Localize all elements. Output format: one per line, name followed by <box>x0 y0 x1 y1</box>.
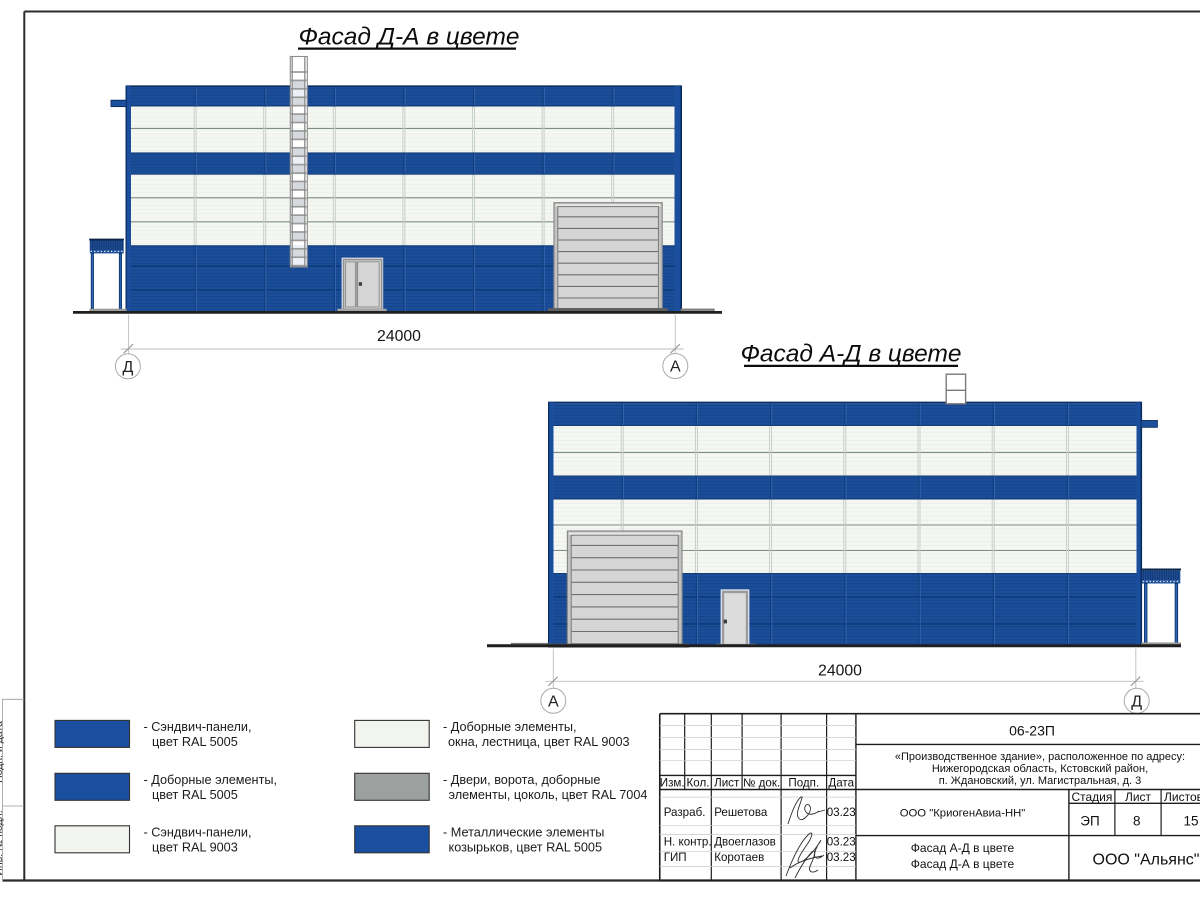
svg-text:цвет RAL 9003: цвет RAL 9003 <box>152 841 238 855</box>
svg-text:Д: Д <box>122 359 133 376</box>
svg-text:Фасад А-Д в цвете: Фасад А-Д в цвете <box>911 841 1015 855</box>
svg-text:03.23: 03.23 <box>827 806 856 819</box>
svg-text:А: А <box>670 359 681 376</box>
svg-text:Решетова: Решетова <box>714 806 768 819</box>
svg-text:06-23П: 06-23П <box>1009 723 1055 739</box>
svg-text:козырьков, цвет RAL 5005: козырьков, цвет RAL 5005 <box>449 841 603 855</box>
svg-text:Листов: Листов <box>1164 790 1200 804</box>
svg-text:- Доборные элементы,: - Доборные элементы, <box>443 720 577 734</box>
svg-text:03.23: 03.23 <box>827 835 856 848</box>
svg-text:окна, лестница, цвет RAL 9003: окна, лестница, цвет RAL 9003 <box>448 735 630 749</box>
svg-text:Нижегородская область, Кстовск: Нижегородская область, Кстовский район, <box>932 763 1148 775</box>
svg-text:Кол.: Кол. <box>687 777 710 790</box>
svg-text:Дата: Дата <box>828 777 854 790</box>
svg-text:элементы, цоколь, цвет RAL 700: элементы, цоколь, цвет RAL 7004 <box>449 788 648 802</box>
svg-text:Коротаев: Коротаев <box>714 851 764 864</box>
svg-text:- Сэндвич-панели,: - Сэндвич-панели, <box>144 720 252 734</box>
svg-text:Фасад Д-А в цвете: Фасад Д-А в цвете <box>298 24 519 51</box>
svg-text:Лист: Лист <box>714 777 740 790</box>
svg-text:- Доборные элементы,: - Доборные элементы, <box>144 773 278 787</box>
svg-text:Стадия: Стадия <box>1071 790 1112 804</box>
svg-text:Н. контр.: Н. контр. <box>664 835 712 848</box>
svg-text:Подп. и дата: Подп. и дата <box>0 721 5 783</box>
svg-text:Подп.: Подп. <box>788 777 819 790</box>
svg-text:ООО "Альянс": ООО "Альянс" <box>1093 851 1200 868</box>
svg-text:Лист: Лист <box>1125 790 1152 804</box>
svg-text:Двоеглазов: Двоеглазов <box>714 835 776 848</box>
svg-text:Фасад А-Д в цвете: Фасад А-Д в цвете <box>740 341 961 368</box>
svg-text:ГИП: ГИП <box>664 851 687 864</box>
svg-text:№ док.: № док. <box>743 777 780 790</box>
svg-text:Д: Д <box>1131 694 1142 711</box>
svg-text:8: 8 <box>1133 814 1141 829</box>
svg-text:Фасад Д-А в цвете: Фасад Д-А в цвете <box>911 857 1015 871</box>
svg-text:Инв. № подл.: Инв. № подл. <box>0 810 5 875</box>
svg-text:24000: 24000 <box>818 663 862 680</box>
svg-text:Изм.: Изм. <box>660 777 685 790</box>
svg-text:- Сэндвич-панели,: - Сэндвич-панели, <box>144 826 252 840</box>
svg-text:цвет RAL 5005: цвет RAL 5005 <box>152 788 238 802</box>
svg-text:- Двери, ворота, доборные: - Двери, ворота, доборные <box>443 773 600 787</box>
svg-text:Разраб.: Разраб. <box>664 806 706 819</box>
svg-text:24000: 24000 <box>377 328 421 345</box>
svg-text:цвет RAL 5005: цвет RAL 5005 <box>152 735 238 749</box>
svg-text:п. Ждановский, ул. Магистральн: п. Ждановский, ул. Магистральная, д. 3 <box>939 775 1142 787</box>
svg-text:- Металлические элементы: - Металлические элементы <box>443 826 604 840</box>
svg-text:«Производственное здание», рас: «Производственное здание», расположенное… <box>895 751 1185 763</box>
svg-text:15: 15 <box>1183 814 1198 829</box>
svg-text:03.23: 03.23 <box>827 851 856 864</box>
svg-text:А: А <box>548 694 559 711</box>
svg-text:ЭП: ЭП <box>1080 814 1099 829</box>
svg-text:ООО "КриогенАвиа-НН": ООО "КриогенАвиа-НН" <box>900 808 1026 820</box>
